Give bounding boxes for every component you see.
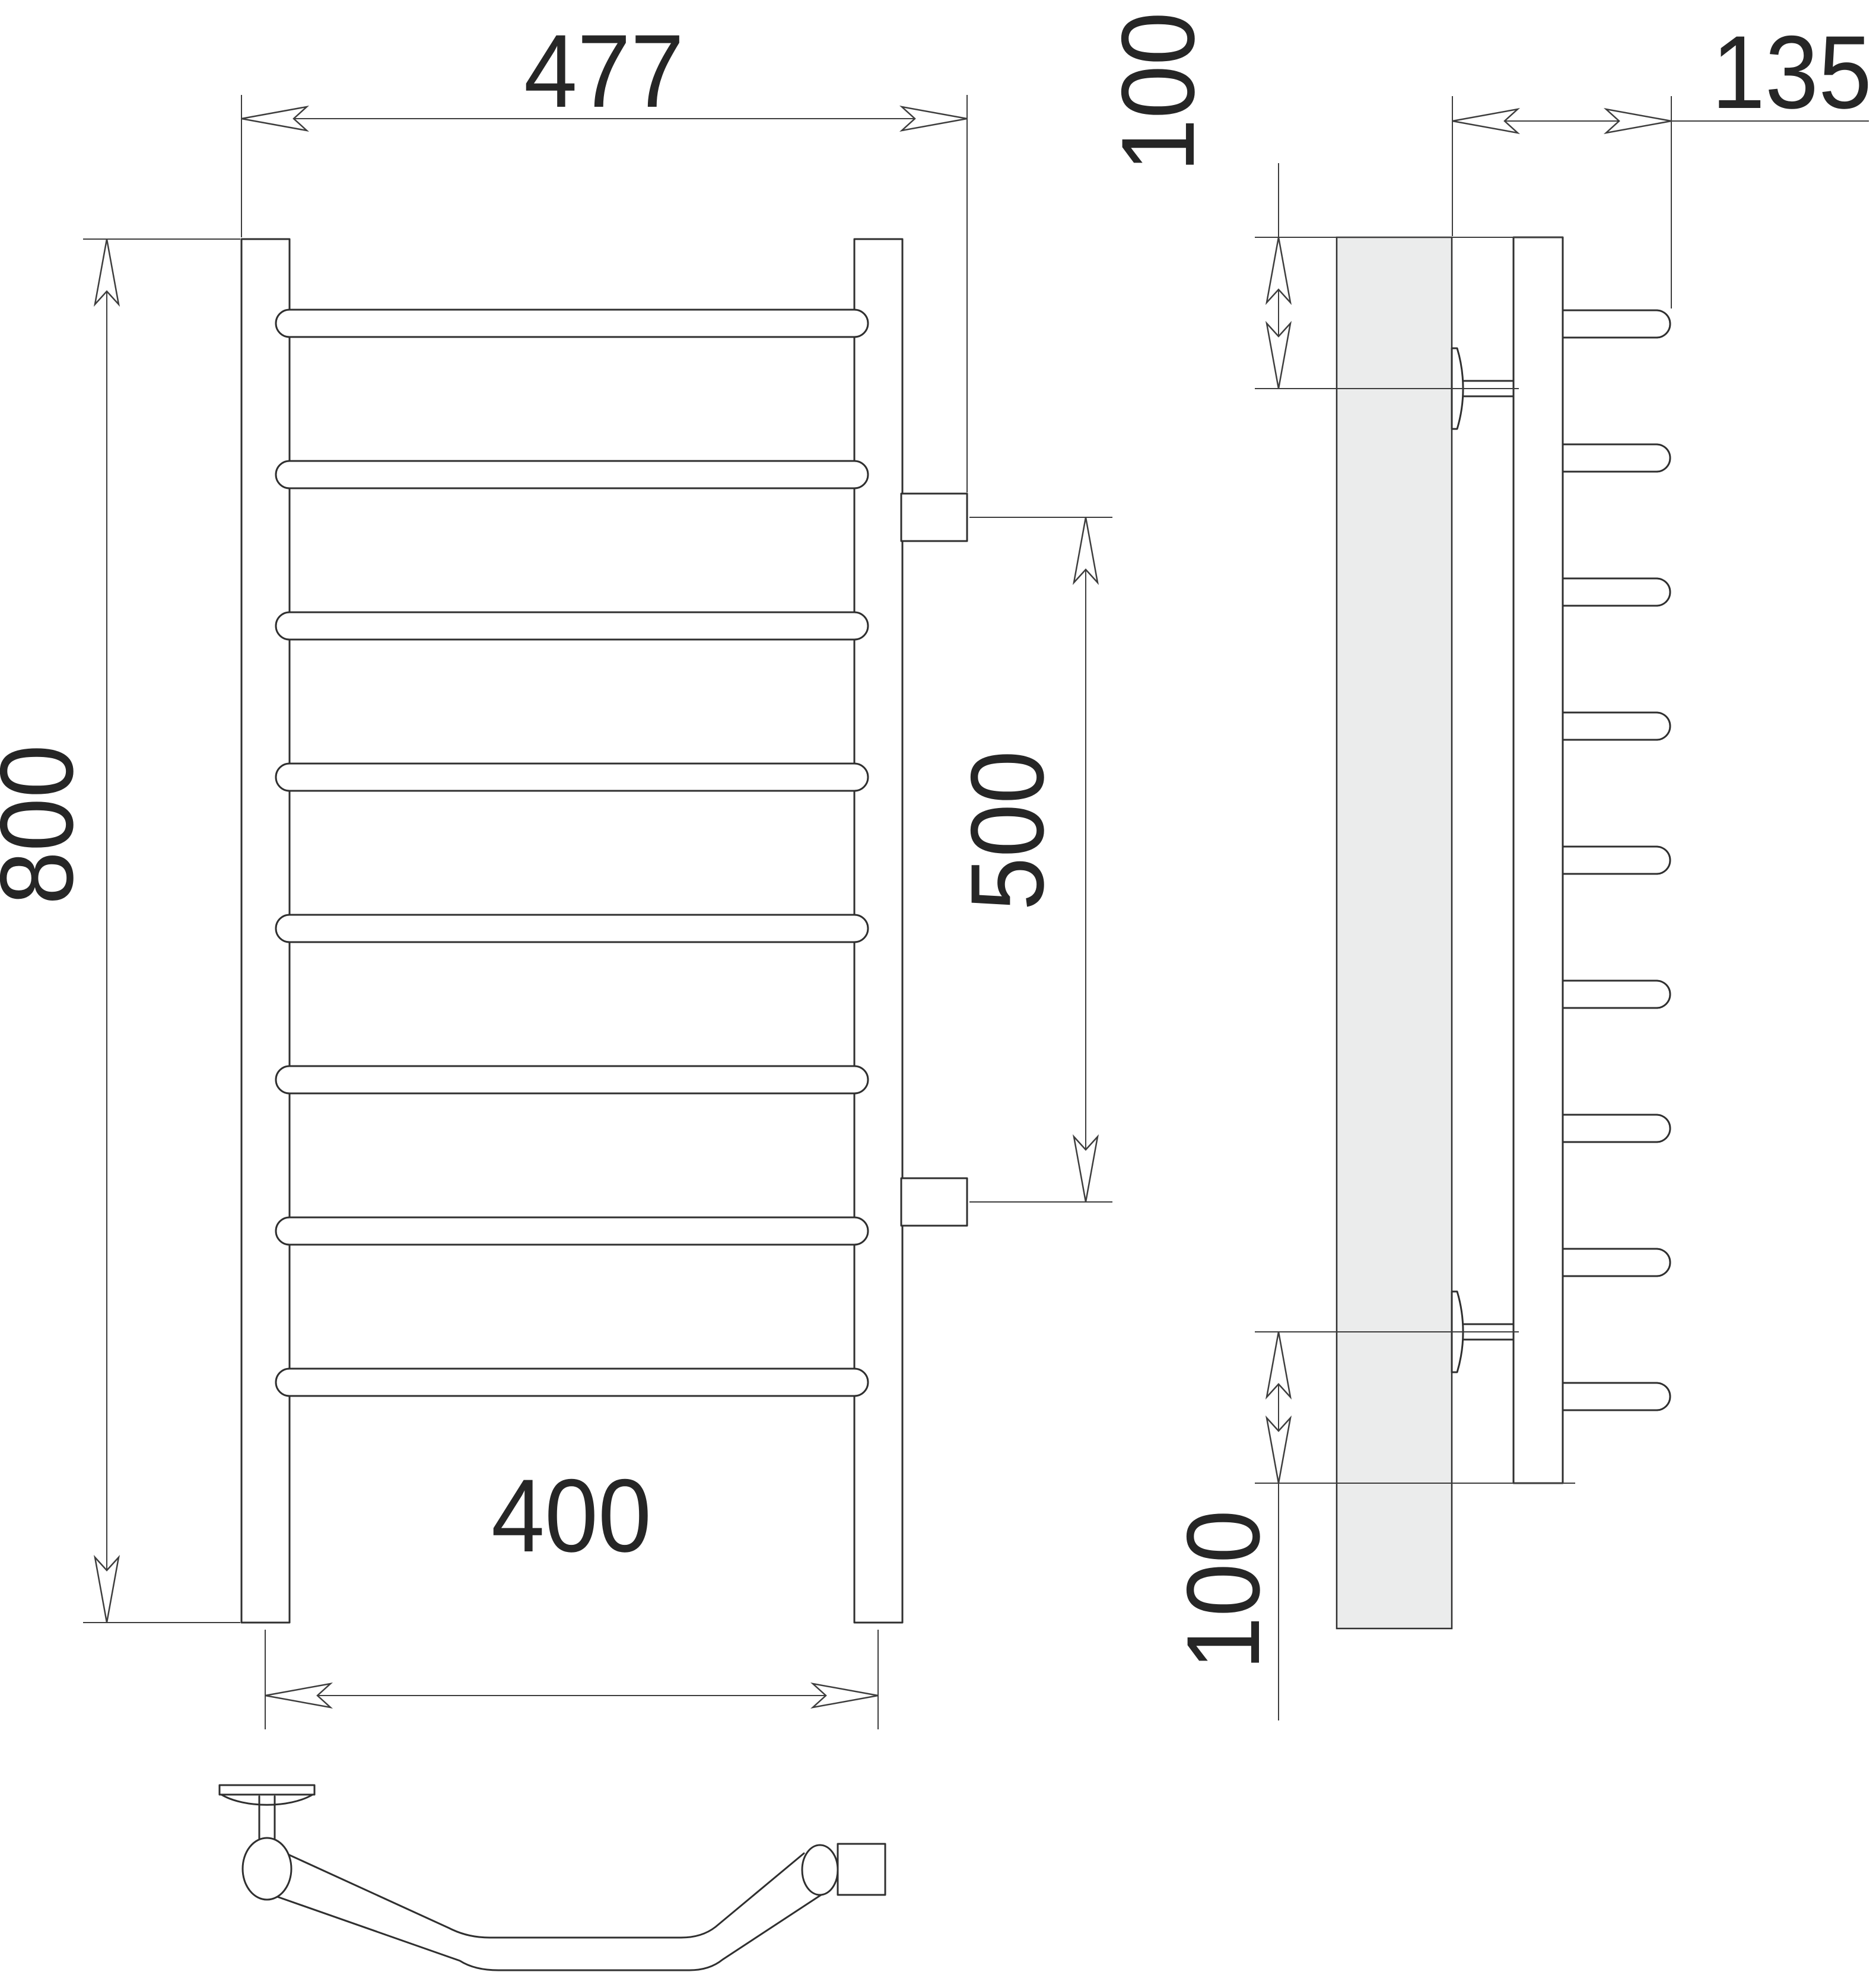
- rung: [276, 612, 868, 640]
- dim-connection-spacing: 500: [950, 517, 1112, 1202]
- detail-pipe-end-left: [243, 1838, 291, 1900]
- drawing-sheet: 477 800 400 500 135: [0, 0, 1876, 1972]
- detail-bracket-cap: [220, 1785, 314, 1795]
- rung: [276, 764, 868, 791]
- rung-side: [1563, 578, 1670, 606]
- towel-rail-drawing: 477 800 400 500 135: [0, 0, 1876, 1972]
- front-view: [241, 239, 967, 1623]
- dim-label-500: 500: [950, 750, 1066, 911]
- rung-side: [1563, 981, 1670, 1008]
- rung-side: [1563, 1249, 1670, 1276]
- dim-label-800: 800: [0, 745, 95, 905]
- dim-label-100-top: 100: [1101, 12, 1216, 172]
- rung-side: [1563, 847, 1670, 874]
- connection-stub-bottom: [901, 1178, 967, 1226]
- rung: [276, 461, 868, 488]
- rung-side: [1563, 1383, 1670, 1410]
- dim-height: 800: [0, 239, 240, 1623]
- detail-connection-stub: [802, 1844, 885, 1895]
- dim-label-400: 400: [491, 1458, 651, 1574]
- rung-side: [1563, 713, 1670, 740]
- rung: [276, 1369, 868, 1396]
- dim-label-100-bottom: 100: [1166, 1510, 1282, 1670]
- wall-section: [1337, 237, 1452, 1629]
- detail-bracket-cap-dome: [221, 1795, 313, 1805]
- connection-stub-top: [901, 494, 967, 541]
- detail-pipe-end-right: [802, 1845, 838, 1895]
- detail-stub-rect: [838, 1844, 885, 1895]
- side-view: [1337, 237, 1670, 1629]
- dim-top-offset: 100: [1101, 12, 1563, 389]
- rung: [276, 1217, 868, 1245]
- rung-side: [1563, 310, 1670, 338]
- rung: [276, 1066, 868, 1093]
- rung-side: [1563, 1115, 1670, 1142]
- detail-view: [220, 1785, 885, 1970]
- rung: [276, 915, 868, 942]
- detail-pipe-outline: [288, 1853, 804, 1938]
- rung: [276, 310, 868, 337]
- side-mounting-plate: [1513, 237, 1563, 1483]
- front-rungs: [276, 310, 868, 1396]
- rung-side: [1563, 444, 1670, 472]
- side-rungs: [1563, 310, 1670, 1410]
- dim-label-135: 135: [1712, 15, 1872, 131]
- dim-mount-width: 400: [265, 1458, 878, 1729]
- dim-label-477: 477: [524, 14, 684, 129]
